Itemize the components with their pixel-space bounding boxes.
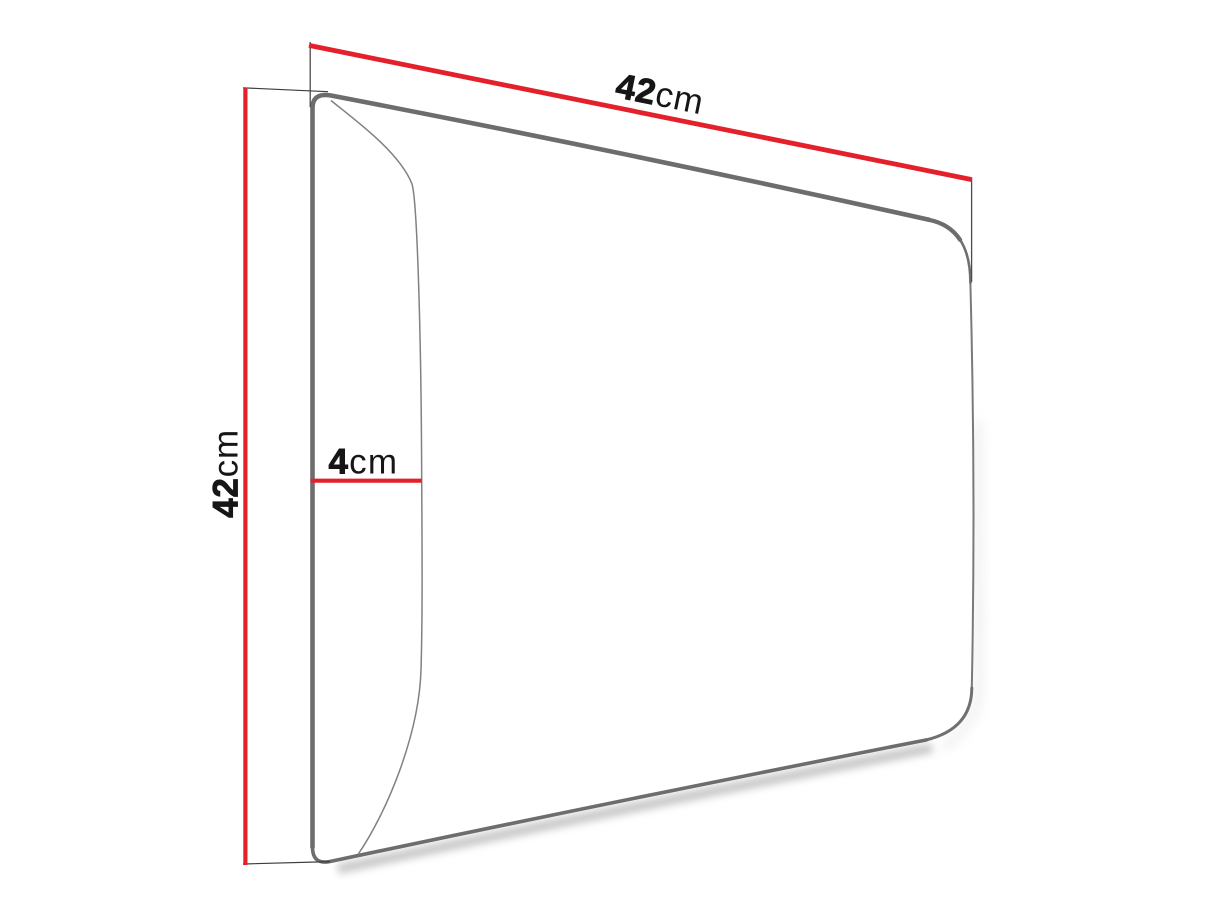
svg-text:42cm: 42cm bbox=[207, 429, 246, 518]
svg-text:4cm: 4cm bbox=[329, 443, 399, 482]
